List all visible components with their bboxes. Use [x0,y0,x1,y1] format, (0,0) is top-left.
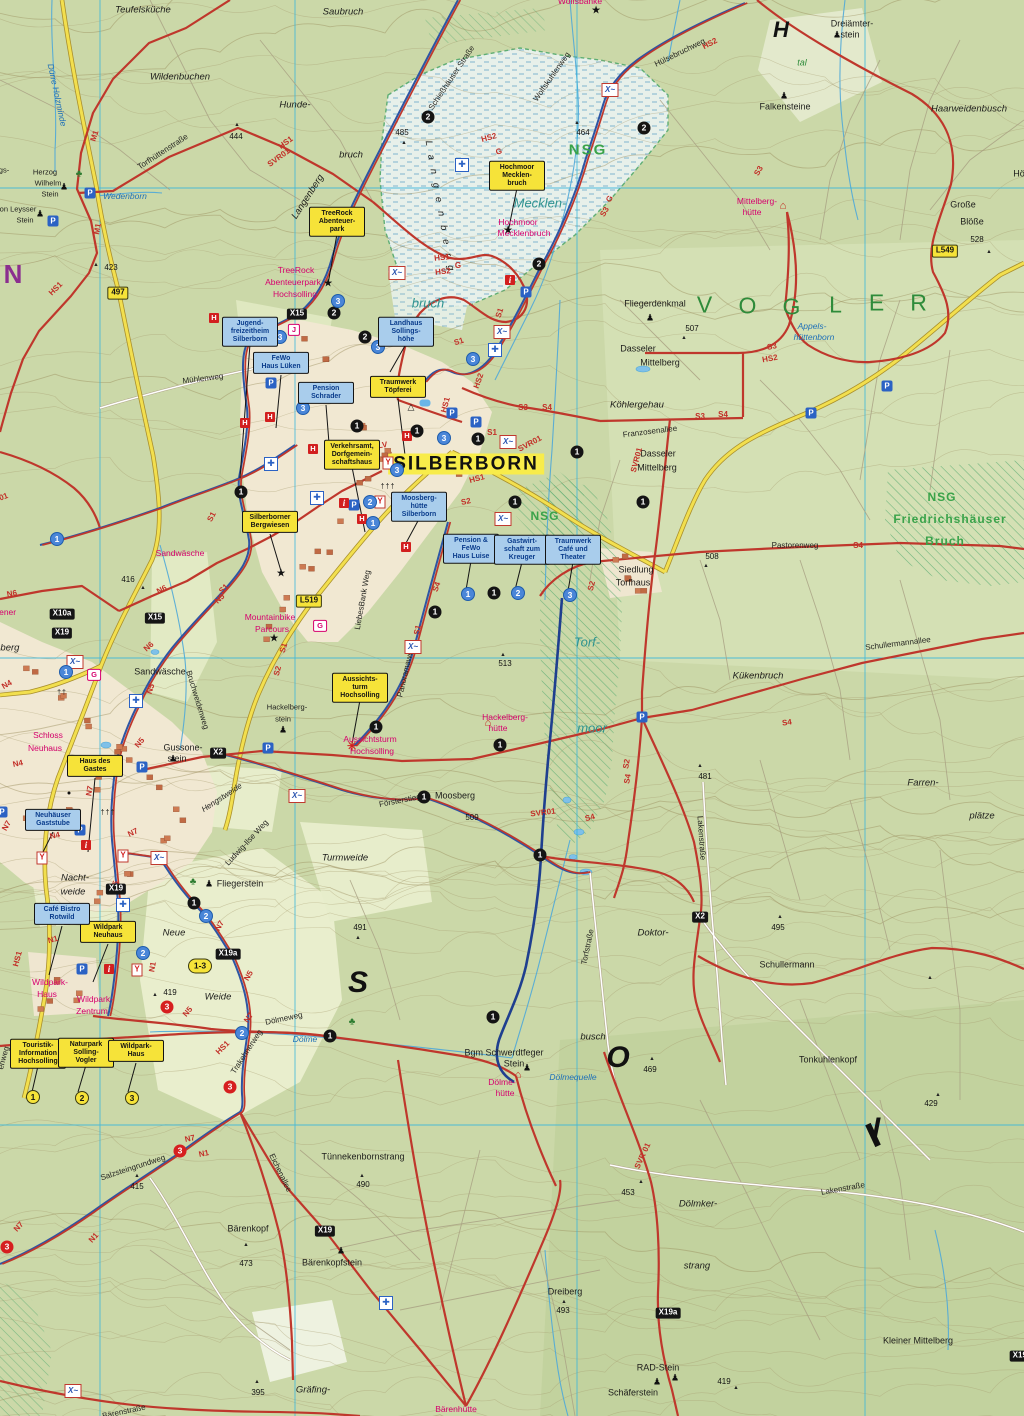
map-artwork [0,0,1024,1416]
map-canvas[interactable]: PPPPPPPPPPPPPPPX~X~X~X~X~X~X~X~X~X~✚✚✚✚✚… [0,0,1024,1416]
